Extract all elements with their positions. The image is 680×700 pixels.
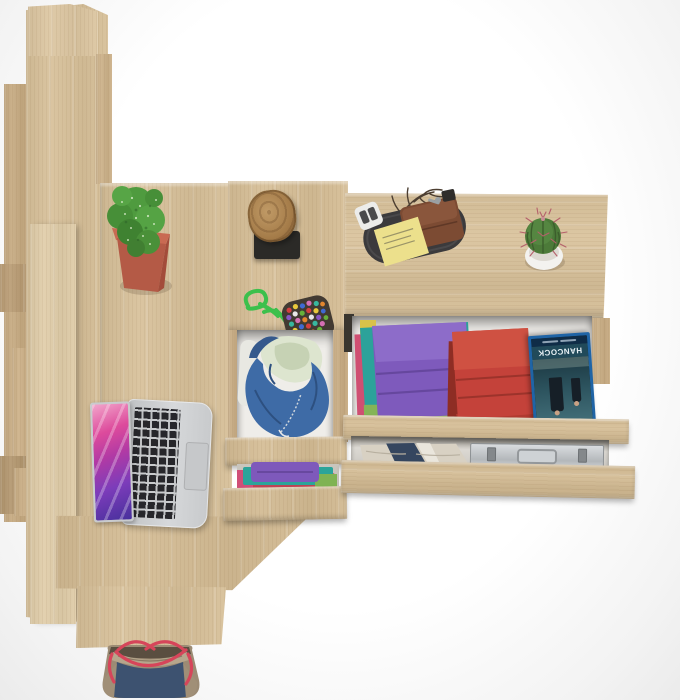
succulent-plant	[98, 176, 182, 302]
wardrobe-top-block	[28, 4, 98, 56]
hoodie	[237, 332, 333, 442]
laptop-keyboard	[129, 407, 181, 519]
bluray-figure-small	[571, 378, 582, 403]
dresser-drawer2-front	[341, 460, 636, 499]
bluray-art	[532, 356, 593, 427]
valet-tray-group	[350, 182, 480, 272]
dresser-side-strip	[592, 318, 610, 384]
briefcase-latch-right	[578, 449, 587, 463]
briefcase-handle	[517, 449, 557, 465]
plant-foliage	[107, 186, 165, 257]
scene-stage: HANCOCK	[0, 0, 680, 700]
laptop-trackpad	[184, 442, 209, 491]
keychain-cord	[246, 291, 286, 322]
bluray-case: HANCOCK	[528, 332, 596, 430]
tote-bag	[94, 636, 206, 700]
cactus	[518, 206, 572, 276]
wardrobe-right-strip	[96, 54, 112, 184]
clothes-right-stack	[447, 328, 536, 430]
laptop-wallpaper	[92, 403, 132, 520]
laptop-screen	[90, 401, 134, 522]
briefcase-latch-left	[487, 447, 496, 461]
bluray-figure-large	[549, 377, 564, 412]
chest-drawer2-front	[223, 486, 348, 521]
laptop	[89, 395, 214, 529]
